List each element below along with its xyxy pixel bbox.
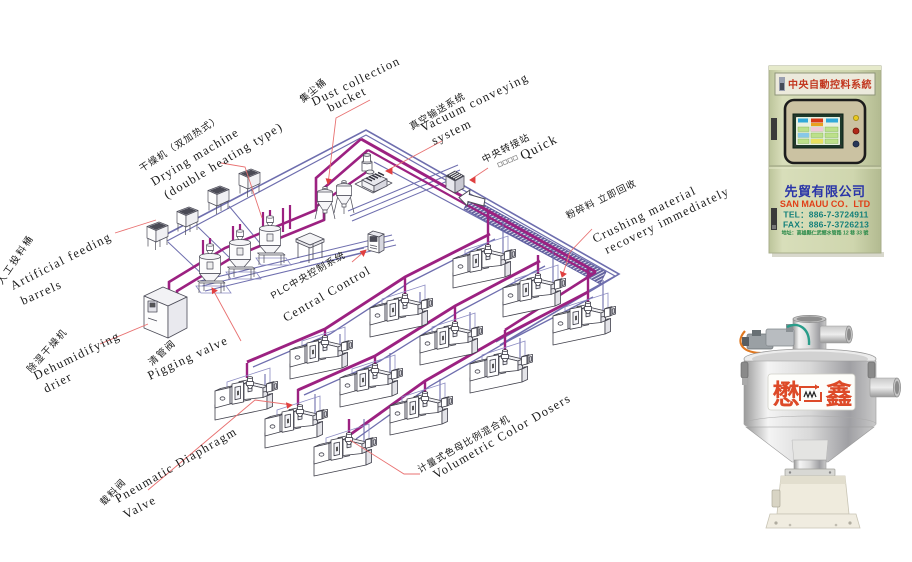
svg-text:鑫: 鑫: [826, 379, 853, 410]
svg-text:地址：高雄縣仁武鄉水管路 12 巷 33 號: 地址：高雄縣仁武鄉水管路 12 巷 33 號: [782, 230, 869, 237]
svg-text:TEL：886-7-3724911: TEL：886-7-3724911: [783, 210, 868, 220]
svg-text:Pneumatic Diaphragm: Pneumatic Diaphragm: [113, 424, 240, 505]
svg-text:中央自動控料系統: 中央自動控料系統: [788, 78, 872, 91]
svg-text:懋: 懋: [773, 380, 800, 410]
svg-text:Vacuum conveying: Vacuum conveying: [418, 70, 531, 135]
svg-text:SAN MAUU CO．LTD: SAN MAUU CO．LTD: [780, 199, 871, 209]
svg-text:先貿有限公司: 先貿有限公司: [784, 184, 865, 199]
svg-text:Volumetric Color Dosers: Volumetric Color Dosers: [431, 391, 574, 482]
svg-text:FAX：886-7-3726213: FAX：886-7-3726213: [783, 220, 869, 230]
